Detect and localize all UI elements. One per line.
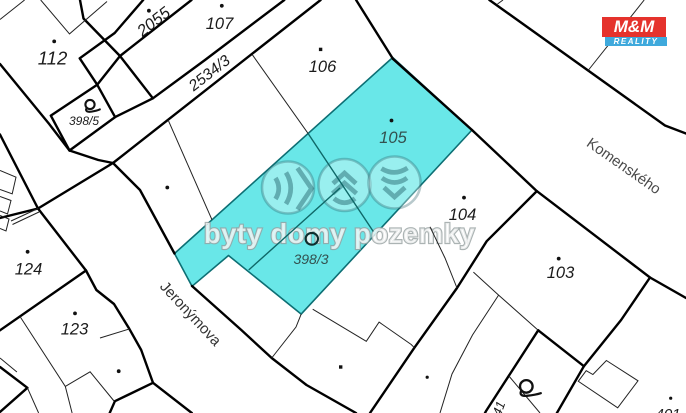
svg-text:124: 124 bbox=[15, 261, 43, 279]
svg-text:byty domy pozemky: byty domy pozemky bbox=[204, 218, 476, 249]
svg-text:398/3: 398/3 bbox=[293, 251, 328, 267]
svg-text:106: 106 bbox=[309, 58, 337, 76]
svg-text:107: 107 bbox=[206, 15, 234, 33]
svg-text:105: 105 bbox=[379, 129, 407, 147]
svg-text:Komenského: Komenského bbox=[583, 135, 663, 198]
svg-text:103: 103 bbox=[547, 264, 575, 282]
svg-text:Jeronýmova: Jeronýmova bbox=[156, 278, 225, 350]
svg-text:398/5: 398/5 bbox=[69, 114, 99, 128]
svg-text:401: 401 bbox=[655, 406, 680, 413]
svg-text:2055: 2055 bbox=[133, 3, 174, 41]
svg-text:112: 112 bbox=[38, 48, 68, 69]
svg-text:104: 104 bbox=[449, 206, 477, 224]
svg-text:123: 123 bbox=[61, 321, 89, 339]
